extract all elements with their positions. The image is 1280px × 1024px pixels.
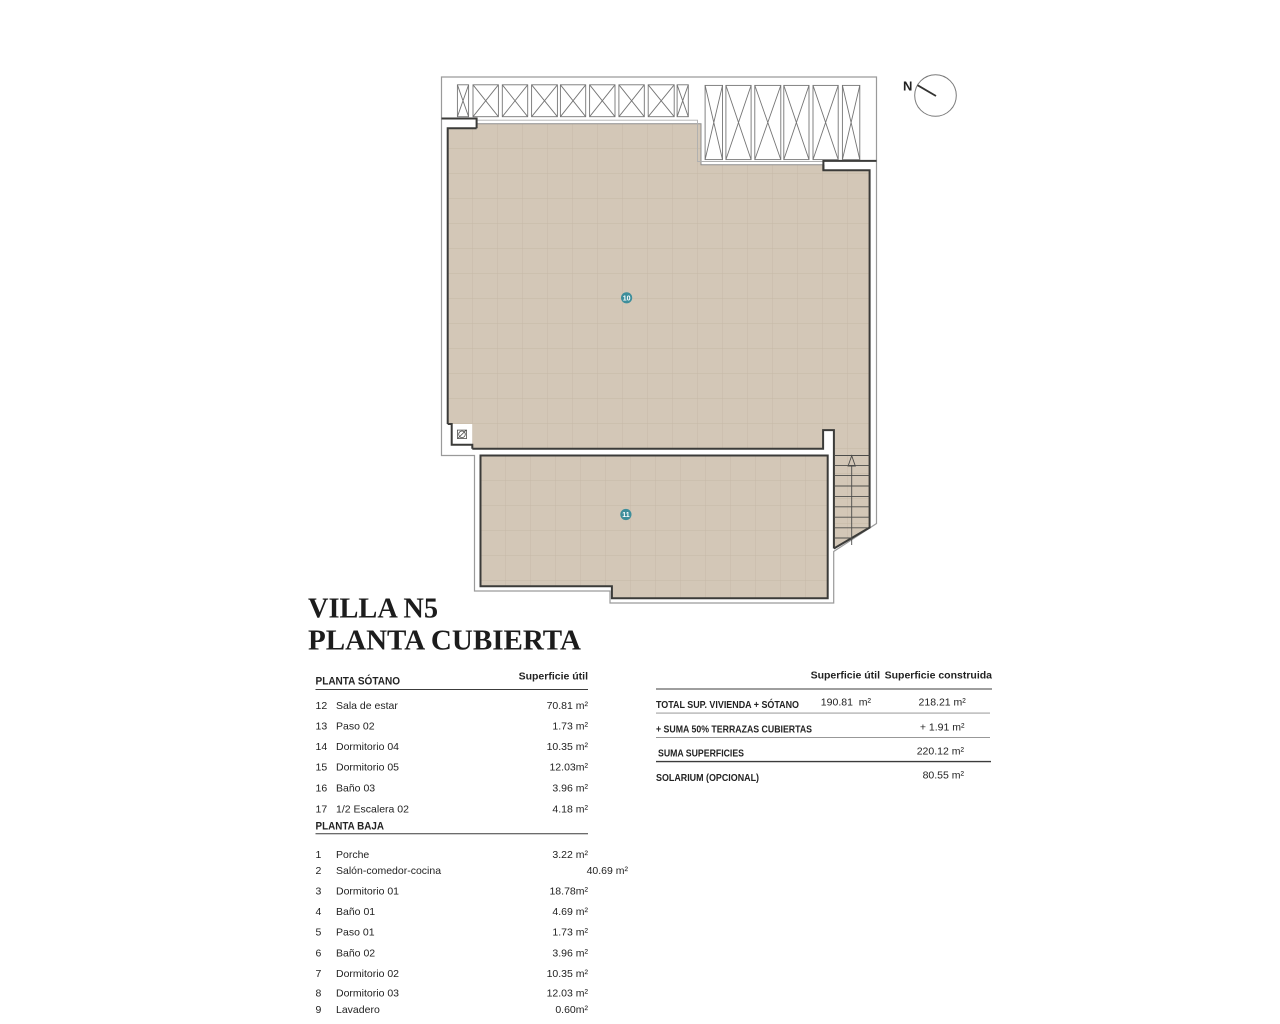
svg-text:12.03 m²: 12.03 m² [547,988,589,1000]
svg-text:13: 13 [316,720,328,732]
svg-text:Superficie útil: Superficie útil [519,670,589,682]
svg-text:4.18 m²: 4.18 m² [552,804,588,816]
svg-text:Baño 02: Baño 02 [336,948,375,960]
svg-text:80.55 m²: 80.55 m² [923,770,965,782]
svg-text:PLANTA BAJA: PLANTA BAJA [316,821,385,833]
svg-text:Superficie útil: Superficie útil [811,670,881,682]
svg-text:220.12 m²: 220.12 m² [917,746,965,758]
svg-text:218.21 m²: 218.21 m² [919,697,967,709]
svg-text:3.96 m²: 3.96 m² [552,783,588,795]
svg-text:3.96 m²: 3.96 m² [552,948,588,960]
svg-text:18.78m²: 18.78m² [549,885,588,897]
svg-text:1.73 m²: 1.73 m² [552,927,588,939]
svg-text:Baño 01: Baño 01 [336,906,375,918]
svg-text:15: 15 [316,762,328,774]
svg-text:PLANTA SÓTANO: PLANTA SÓTANO [316,675,401,688]
svg-text:17: 17 [316,804,328,816]
svg-text:Superficie construida: Superficie construida [885,670,993,682]
svg-text:Dormitorio 01: Dormitorio 01 [336,885,399,897]
svg-text:2: 2 [316,865,322,877]
svg-text:40.69 m²: 40.69 m² [587,865,629,877]
svg-text:SUMA SUPERFICIES: SUMA SUPERFICIES [658,749,744,760]
svg-text:4.69 m²: 4.69 m² [552,906,588,918]
svg-text:1.73 m²: 1.73 m² [552,720,588,732]
svg-text:Dormitorio 02: Dormitorio 02 [336,968,399,980]
svg-text:Dormitorio 04: Dormitorio 04 [336,741,399,753]
svg-text:6: 6 [316,948,322,960]
svg-text:10: 10 [623,296,631,303]
svg-text:Sala de estar: Sala de estar [336,700,398,712]
svg-text:SOLARIUM (OPCIONAL): SOLARIUM (OPCIONAL) [656,773,759,784]
svg-text:11: 11 [622,512,630,519]
svg-text:0.60m²: 0.60m² [555,1004,588,1016]
svg-text:3.22 m²: 3.22 m² [552,849,588,861]
svg-text:Dormitorio 05: Dormitorio 05 [336,762,399,774]
svg-text:10.35 m²: 10.35 m² [547,968,589,980]
svg-text:70.81 m²: 70.81 m² [547,700,589,712]
svg-text:190.81 m²: 190.81 m² [821,697,872,709]
svg-text:PLANTA CUBIERTA: PLANTA CUBIERTA [308,626,582,657]
svg-text:VILLA N5: VILLA N5 [308,594,438,625]
svg-text:12.03m²: 12.03m² [549,762,588,774]
svg-text:8: 8 [316,988,322,1000]
svg-text:N: N [903,79,912,94]
svg-text:+ 1.91 m²: + 1.91 m² [920,722,965,734]
svg-text:Salón-comedor-cocina: Salón-comedor-cocina [336,865,441,877]
svg-text:Lavadero: Lavadero [336,1004,380,1016]
svg-text:14: 14 [316,741,328,753]
svg-text:Baño 03: Baño 03 [336,783,375,795]
svg-text:+ SUMA 50% TERRAZAS CUBIERTAS: + SUMA 50% TERRAZAS CUBIERTAS [656,725,812,736]
svg-text:Paso 02: Paso 02 [336,720,375,732]
svg-text:Porche: Porche [336,849,369,861]
svg-text:1: 1 [316,849,322,861]
svg-text:7: 7 [316,968,322,980]
svg-text:5: 5 [316,927,322,939]
svg-text:12: 12 [316,700,328,712]
svg-text:3: 3 [316,885,322,897]
svg-text:TOTAL SUP. VIVIENDA + SÓTANO: TOTAL SUP. VIVIENDA + SÓTANO [656,698,799,711]
svg-text:9: 9 [316,1004,322,1016]
svg-text:Paso 01: Paso 01 [336,927,375,939]
svg-text:Dormitorio 03: Dormitorio 03 [336,988,399,1000]
svg-text:10.35 m²: 10.35 m² [547,741,589,753]
svg-text:1/2 Escalera 02: 1/2 Escalera 02 [336,804,409,816]
svg-text:4: 4 [316,906,322,918]
svg-text:16: 16 [316,783,328,795]
